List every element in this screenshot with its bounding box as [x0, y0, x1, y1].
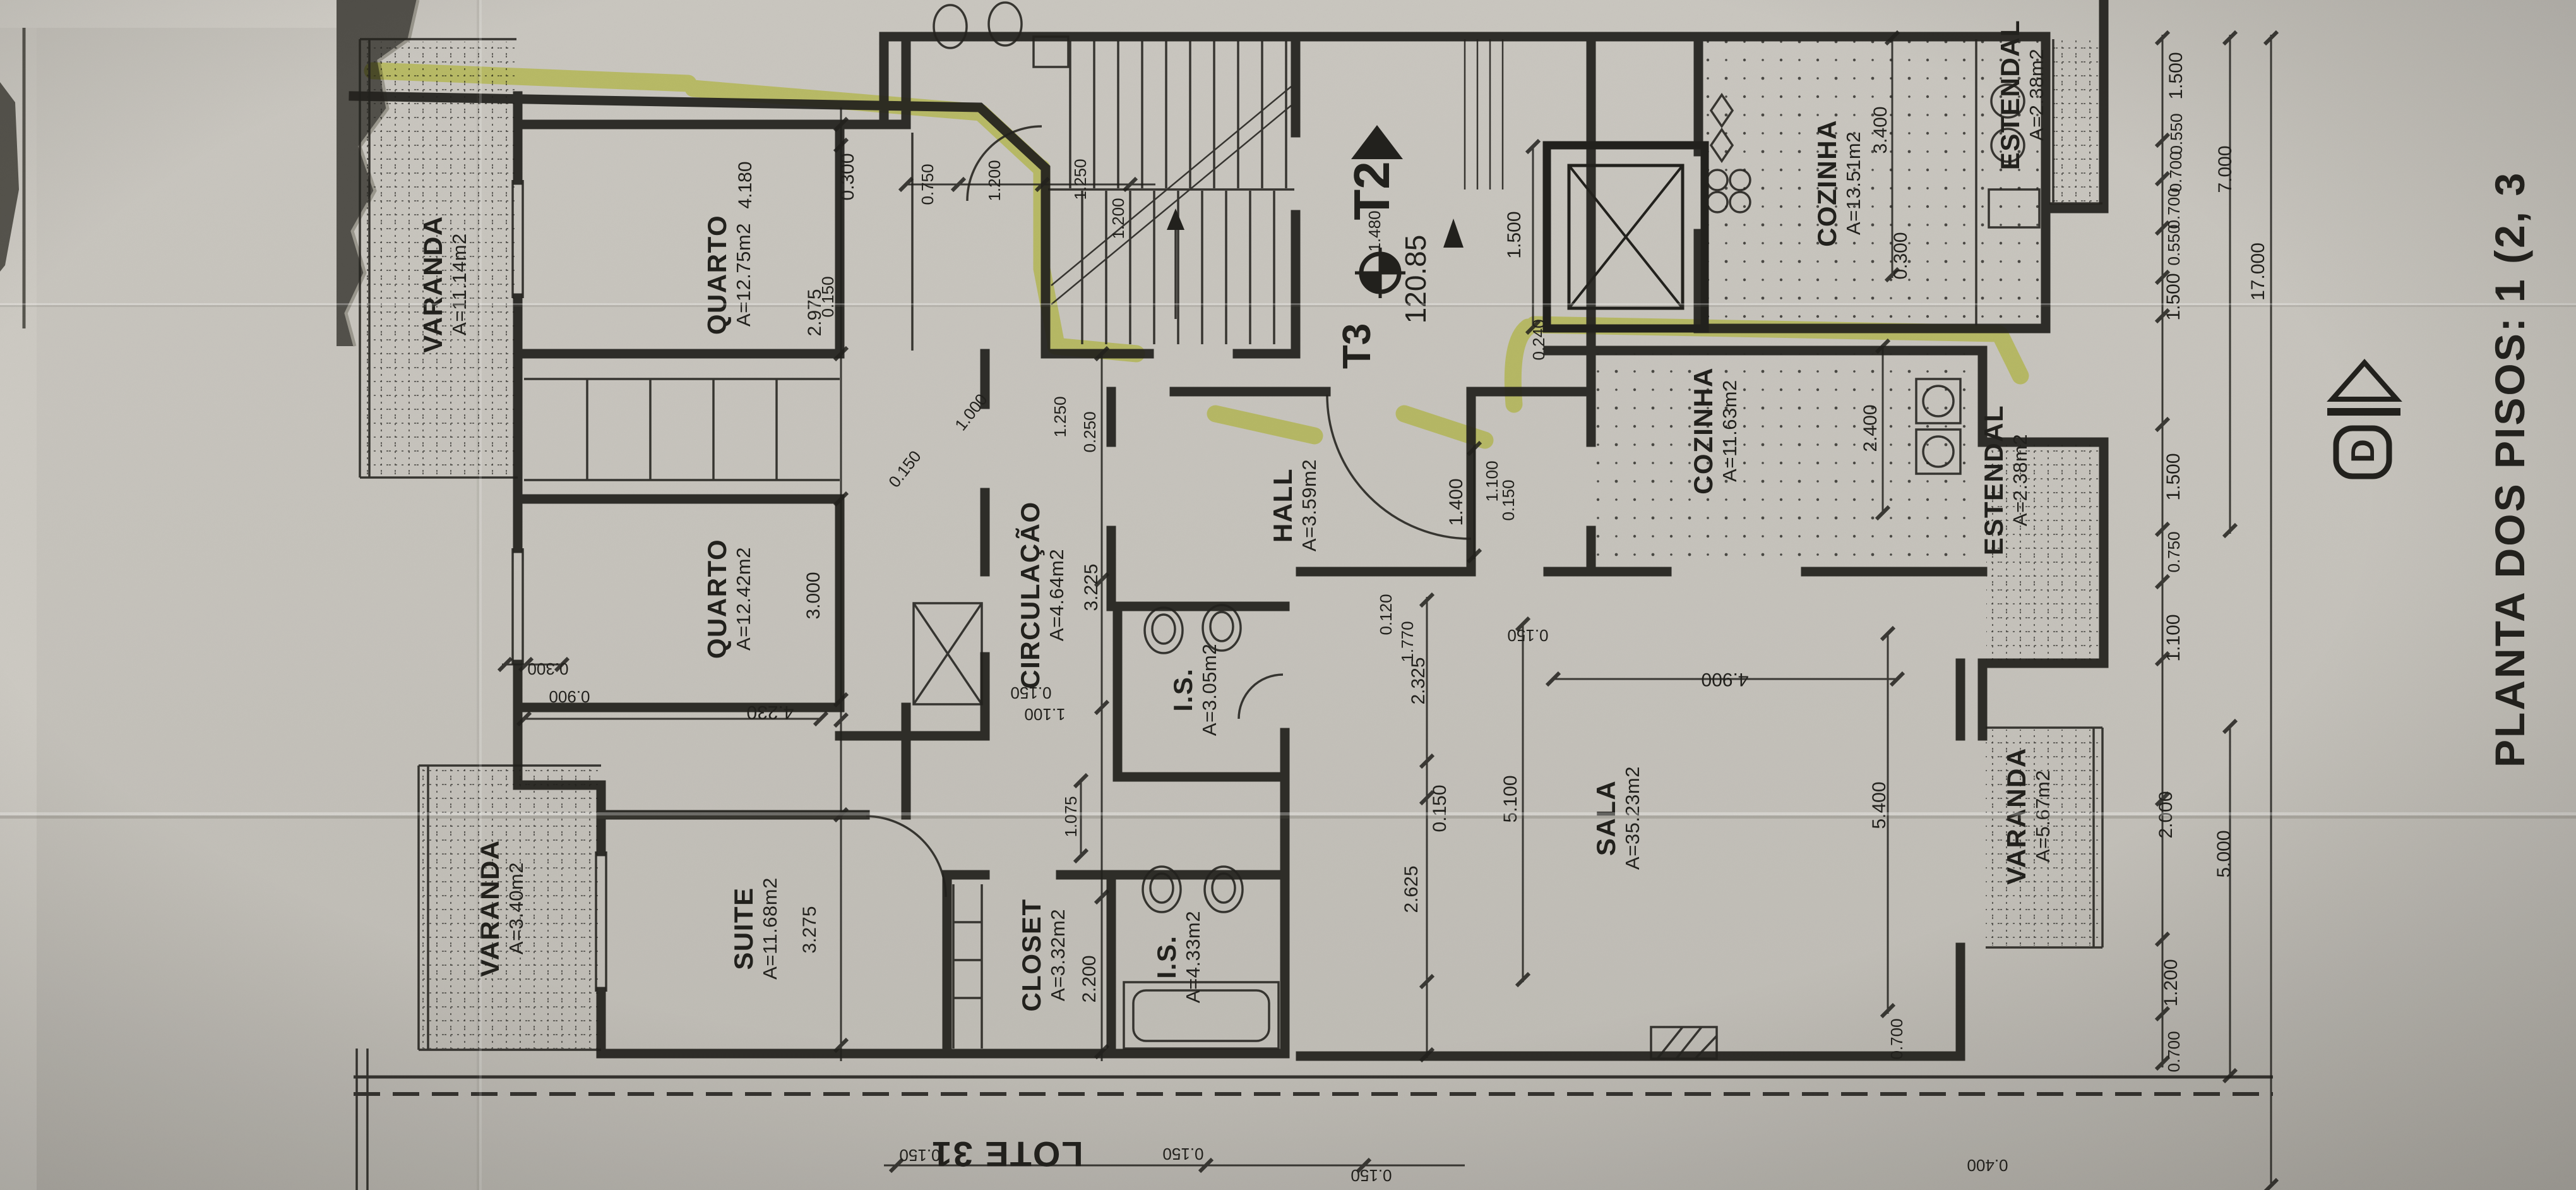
paper-grain — [0, 0, 2576, 1190]
floor-plan-photo: T2 120.85 T3 D PLANTA DOS PISOS: 1 (2, 3… — [0, 0, 2576, 1190]
floor-plan-drawing: T2 120.85 T3 D PLANTA DOS PISOS: 1 (2, 3… — [0, 0, 2576, 1190]
